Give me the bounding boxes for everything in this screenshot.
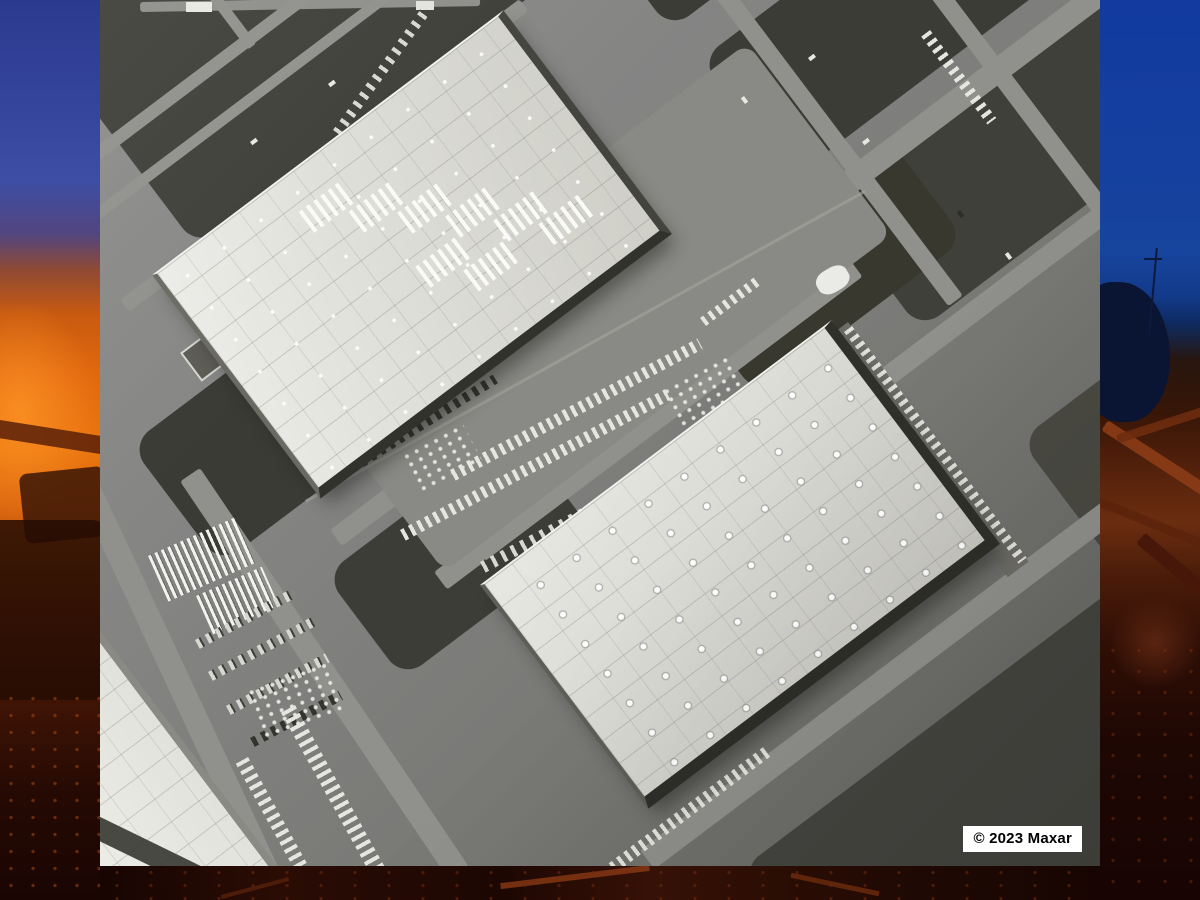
rubble-flecks <box>100 866 1100 900</box>
collapsed-wall-silhouette <box>0 520 110 700</box>
pole-crossarm <box>1144 258 1162 260</box>
satellite-image: © 2023 Maxar <box>100 0 1100 866</box>
maxar-credit-label: © 2023 Maxar <box>973 830 1072 847</box>
background-rubble-bottom <box>100 866 1100 900</box>
background-fire-photo-left <box>0 0 100 900</box>
photo-vignette <box>100 0 1100 866</box>
background-fire-photo-right <box>1100 0 1200 900</box>
rubble-speckles <box>1100 640 1200 900</box>
maxar-credit-badge: © 2023 Maxar <box>963 826 1082 852</box>
page: © 2023 Maxar <box>0 0 1200 900</box>
ember-speckles <box>0 690 100 900</box>
